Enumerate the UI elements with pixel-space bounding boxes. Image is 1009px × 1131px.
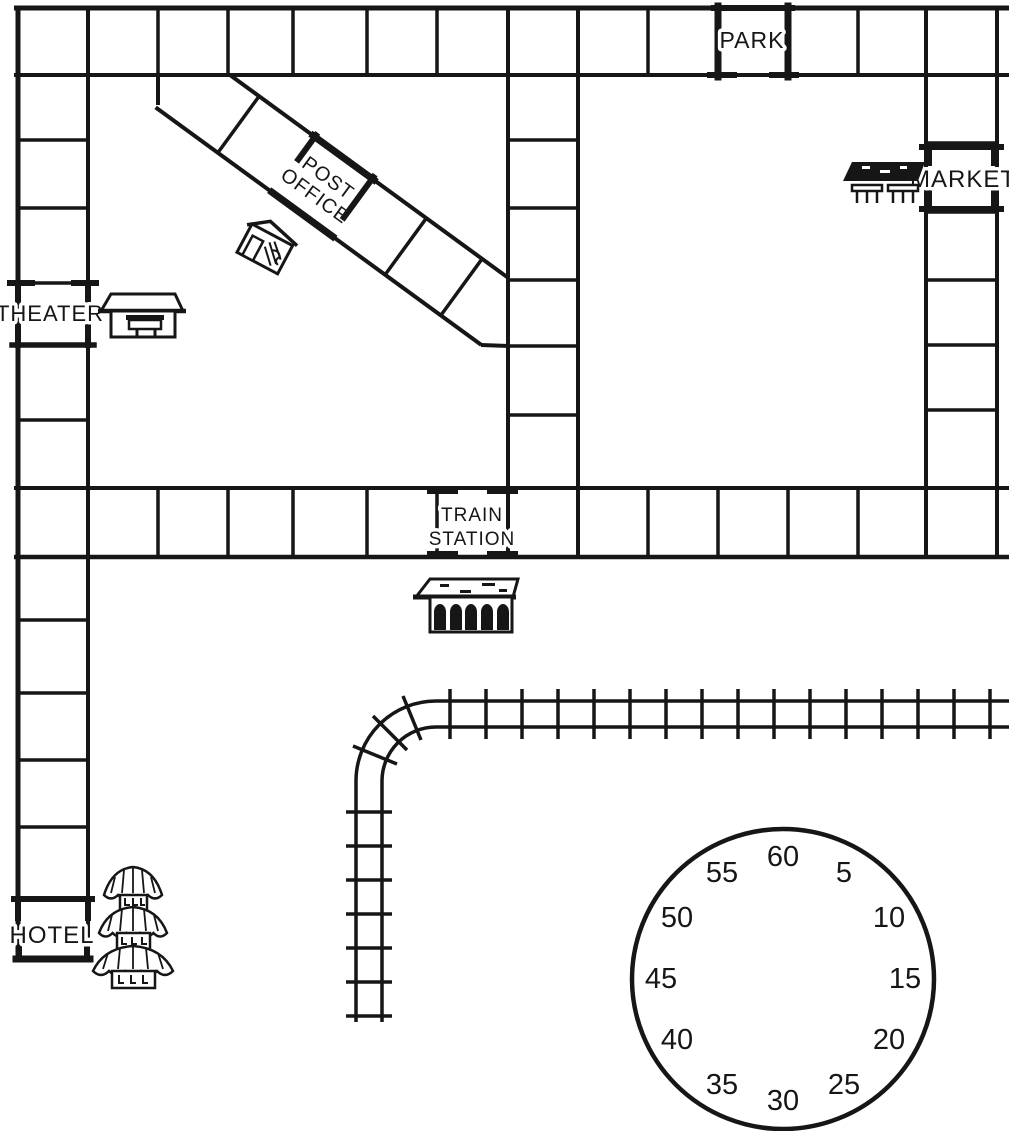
dial-number: 55: [706, 857, 738, 889]
pagoda-hotel-icon: [93, 867, 173, 988]
market-label: MARKET: [910, 166, 1009, 193]
dial-number: 60: [767, 841, 799, 873]
dial-number: 30: [767, 1085, 799, 1117]
dial-number: 20: [873, 1024, 905, 1056]
diagonal-street: POST OFFICE: [156, 49, 524, 346]
train-station-cell: TRAIN STATION: [429, 491, 516, 554]
park-label: PARK: [720, 27, 785, 53]
post-office-cell: POST OFFICE: [270, 132, 377, 237]
hotel-cell: HOTEL: [9, 899, 94, 959]
minute-dial: 5 10 15 20 25 30 35 40 45 50 55 60: [632, 829, 934, 1129]
train-station-label-line1: TRAIN: [441, 505, 503, 526]
dial-number: 5: [836, 857, 852, 889]
town-map: POST OFFICE PARK THEATER MARKET T: [0, 0, 1009, 1131]
train-station-label-line2: STATION: [429, 529, 516, 550]
hotel-label: HOTEL: [9, 922, 94, 949]
park-cell: PARK: [710, 6, 796, 77]
dial-number: 45: [645, 963, 677, 995]
dial-number: 10: [873, 902, 905, 934]
theater-label: THEATER: [0, 301, 104, 326]
dial-number: 40: [661, 1024, 693, 1056]
dial-number: 50: [661, 902, 693, 934]
dial-number: 35: [706, 1069, 738, 1101]
train-station-building-icon: [413, 579, 518, 632]
scanned-map-page: POST OFFICE PARK THEATER MARKET T: [0, 0, 1009, 1131]
dial-number: 15: [889, 963, 921, 995]
post-office-house-icon: [233, 212, 301, 275]
theater-cell: THEATER: [0, 283, 104, 345]
street-grid: [14, 8, 1009, 959]
dial-number: 25: [828, 1069, 860, 1101]
theater-building-icon: [98, 294, 186, 337]
